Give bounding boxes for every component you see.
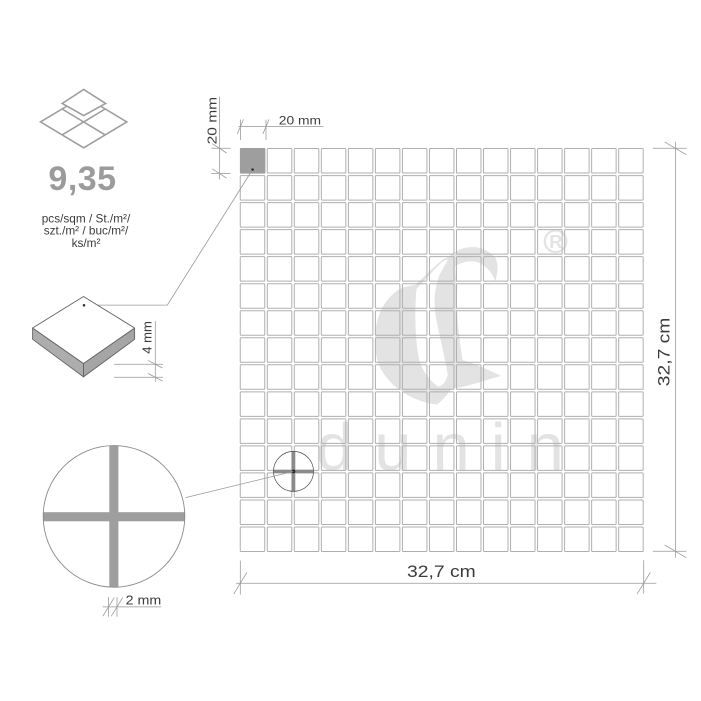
svg-text:20 mm: 20 mm (205, 97, 220, 145)
svg-text:4 mm: 4 mm (140, 321, 155, 354)
svg-text:32,7 cm: 32,7 cm (655, 318, 674, 387)
svg-text:ks/m²: ks/m² (72, 236, 101, 250)
svg-text:2 mm: 2 mm (126, 593, 162, 607)
svg-text:9,35: 9,35 (48, 160, 116, 198)
svg-text:R: R (549, 232, 562, 252)
svg-text:32,7 cm: 32,7 cm (407, 562, 476, 581)
svg-text:dunin: dunin (316, 410, 585, 485)
svg-text:20 mm: 20 mm (279, 114, 321, 128)
